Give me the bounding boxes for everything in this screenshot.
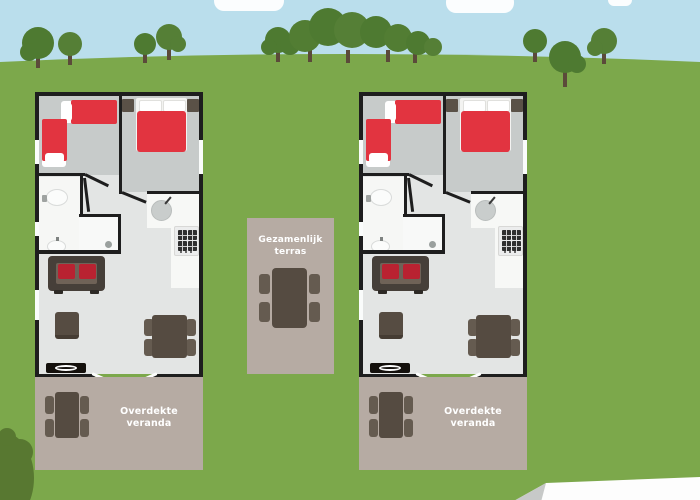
shower-cubicle (403, 214, 445, 254)
stove-icon (498, 226, 523, 256)
dining-chair-icon (510, 339, 520, 356)
wall (471, 191, 523, 194)
nightstand-icon (187, 99, 199, 112)
bed-blanket (461, 111, 510, 152)
window (199, 140, 203, 174)
toilet-icon (370, 189, 392, 206)
veranda-table-icon (379, 392, 403, 438)
terrace-chair-icon (309, 274, 320, 294)
burner (512, 230, 521, 240)
single-bed-icon (71, 100, 117, 124)
sofa-foot (414, 290, 423, 294)
dining-chair-icon (186, 339, 196, 356)
terrace-table-icon (272, 268, 307, 328)
veranda: Overdekte veranda (35, 377, 203, 470)
wall (39, 250, 121, 254)
shower-drain-icon (105, 241, 112, 248)
side-table-icon (379, 312, 403, 339)
cloud-icon (608, 0, 632, 6)
floor-plan (359, 92, 527, 378)
veranda-label: Overdekte veranda (97, 406, 201, 430)
wall (363, 173, 409, 176)
tv-screen (55, 365, 77, 371)
window (35, 222, 39, 236)
wall (35, 92, 203, 96)
tv-screen (379, 365, 401, 371)
tv-cabinet-icon (46, 363, 86, 373)
wall (199, 92, 203, 378)
veranda-chair-icon (404, 396, 413, 414)
stove-knobs (180, 251, 195, 253)
cloud-icon (446, 0, 514, 13)
veranda-chair-icon (80, 419, 89, 437)
terrace-label: Gezamenlijk terras (247, 234, 334, 258)
shower-cubicle (79, 214, 121, 254)
shower-drain-icon (429, 241, 436, 248)
wall (147, 191, 199, 194)
window (35, 140, 39, 164)
veranda-label: Overdekte veranda (421, 406, 525, 430)
wall (523, 92, 527, 378)
burner (502, 230, 511, 240)
sofa-icon (48, 256, 105, 291)
floor-plan (35, 92, 203, 378)
toilet-tank (42, 195, 47, 202)
wall (359, 92, 527, 96)
tv-cabinet-icon (370, 363, 410, 373)
terrace-chair-icon (309, 302, 320, 322)
window (359, 290, 363, 320)
single-bed-icon (395, 100, 441, 124)
veranda-chair-icon (404, 419, 413, 437)
bed-blanket (137, 111, 186, 152)
sofa-foot (378, 290, 387, 294)
window (523, 140, 527, 174)
burner (178, 241, 187, 251)
terrace-chair-icon (259, 274, 270, 294)
veranda-chair-icon (45, 396, 54, 414)
shared-terrace: Gezamenlijk terras (247, 218, 334, 374)
burner (178, 230, 187, 240)
burner (188, 230, 197, 240)
wall (363, 250, 445, 254)
veranda-chair-icon (80, 396, 89, 414)
cushion (403, 264, 420, 279)
cushion (79, 264, 96, 279)
side-table-icon (55, 312, 79, 339)
cushion (382, 264, 399, 279)
veranda-chair-icon (369, 396, 378, 414)
chalet-left: Overdekte veranda (35, 92, 203, 470)
sofa-icon (372, 256, 429, 291)
toilet-icon (46, 189, 68, 206)
burner (502, 241, 511, 251)
chalet-right: Overdekte veranda (359, 92, 527, 470)
veranda-table-icon (55, 392, 79, 438)
pillow (45, 153, 64, 163)
terrace-label-line1: Gezamenlijk (247, 234, 334, 246)
kitchen-sink-icon (151, 200, 172, 221)
sofa-foot (54, 290, 63, 294)
veranda: Overdekte veranda (359, 377, 527, 470)
dining-chair-icon (186, 319, 196, 336)
veranda-chair-icon (369, 419, 378, 437)
stove-icon (174, 226, 199, 256)
window (359, 222, 363, 236)
toilet-tank (366, 195, 371, 202)
wall (119, 96, 122, 194)
burner (512, 241, 521, 251)
dining-chair-icon (510, 319, 520, 336)
tap-icon (380, 237, 383, 241)
tap-icon (56, 237, 59, 241)
dining-table-icon (476, 315, 511, 358)
kitchen-sink-icon (475, 200, 496, 221)
pillow (369, 153, 388, 163)
holiday-park-floorplan-scene: Overdekte veranda (0, 0, 700, 500)
veranda-chair-icon (45, 419, 54, 437)
terrace-chair-icon (259, 302, 270, 322)
wall (443, 96, 446, 194)
wall (39, 173, 85, 176)
window (359, 140, 363, 164)
nightstand-icon (122, 99, 134, 112)
nightstand-icon (446, 99, 458, 112)
stove-knobs (504, 251, 519, 253)
sofa-foot (90, 290, 99, 294)
window (35, 290, 39, 320)
cushion (58, 264, 75, 279)
cloud-icon (214, 0, 284, 11)
nightstand-icon (511, 99, 523, 112)
dining-table-icon (152, 315, 187, 358)
terrace-label-line2: terras (247, 246, 334, 258)
burner (188, 241, 197, 251)
